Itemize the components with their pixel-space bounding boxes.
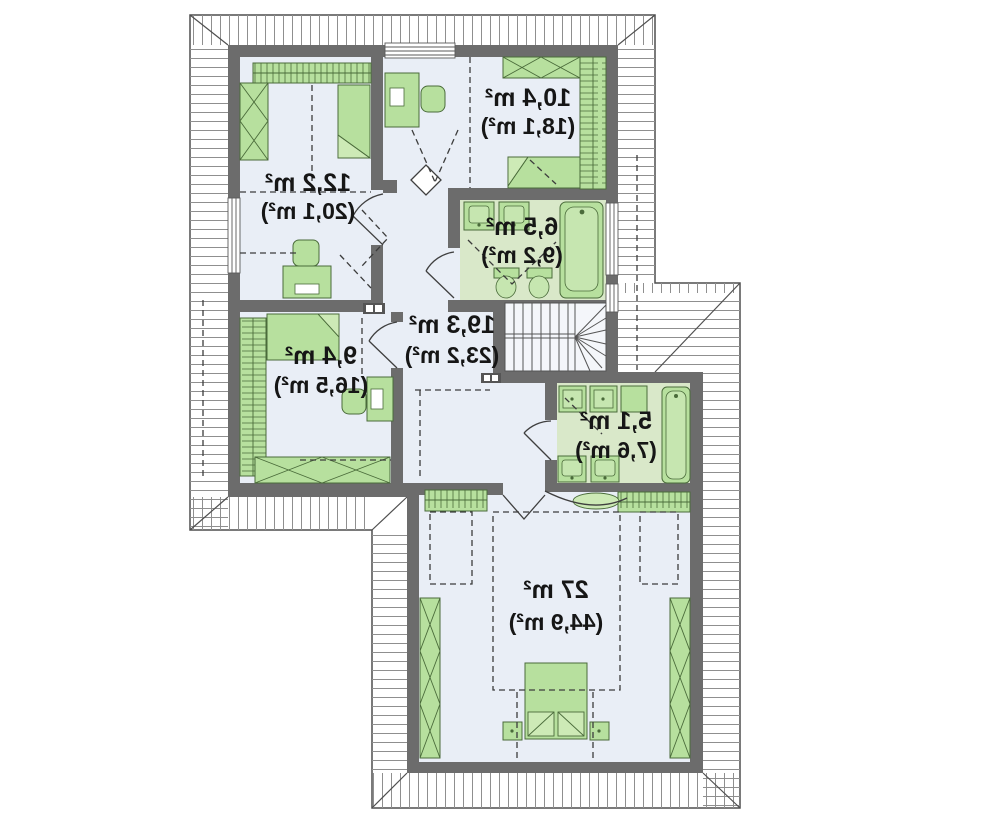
desk-icon xyxy=(283,266,331,298)
roof-hatch-bottom-left-wing xyxy=(190,497,372,530)
dresser-icon xyxy=(573,493,619,509)
roof-hatch-notch xyxy=(618,293,740,372)
double-bed-icon xyxy=(525,663,587,739)
room-label-bathroom-south: 5,1 m² xyxy=(580,407,652,435)
roof-hatch-notch-edge xyxy=(618,283,740,293)
wardrobe-icon xyxy=(253,63,371,83)
closet-icon xyxy=(425,490,487,511)
wardrobe-icon xyxy=(580,57,606,189)
floor-plan-page: 10,4 m² (18,1 m²) 12,2 m² (20,1 m²) 6,5 … xyxy=(0,0,1000,822)
room-label-master-bedroom: 27 m² xyxy=(523,576,588,604)
desk-icon xyxy=(385,73,419,127)
roof-hatch-bottom xyxy=(372,773,740,808)
chair-icon xyxy=(293,240,319,266)
roof-hatch-lower-left xyxy=(372,530,407,773)
room-label-bathroom-north: 6,5 m² xyxy=(486,213,558,241)
floor-plan: 10,4 m² (18,1 m²) 12,2 m² (20,1 m²) 6,5 … xyxy=(0,0,1000,822)
room-sublabel-bedroom-west: (20,1 m²) xyxy=(261,198,356,224)
room-label-hall: 19,3 m² xyxy=(409,311,495,339)
window-east-bathroom xyxy=(606,203,618,275)
roof-hatch-lower-right xyxy=(703,372,740,808)
room-label-bedroom-north: 10,4 m² xyxy=(485,84,571,112)
window-west xyxy=(228,198,240,273)
roof-hatch-left xyxy=(190,45,228,530)
room-sublabel-bathroom-north: (9,2 m²) xyxy=(481,242,563,268)
bed-icon xyxy=(338,85,370,158)
room-label-bedroom-southwest: 9,4 m² xyxy=(285,342,357,370)
wardrobe-icon xyxy=(420,598,440,758)
closet-icon xyxy=(618,492,690,512)
window-east-stairs xyxy=(606,284,618,312)
room-sublabel-master-bedroom: (44,9 m²) xyxy=(509,609,604,635)
wardrobe-icon xyxy=(240,318,266,476)
bed-icon xyxy=(508,157,580,188)
room-sublabel-bedroom-north: (18,1 m²) xyxy=(481,113,576,139)
stairs xyxy=(505,303,606,371)
desk-icon xyxy=(367,377,393,421)
window-north xyxy=(385,43,455,58)
vent-shaft xyxy=(481,373,501,383)
wardrobe-icon xyxy=(670,598,690,758)
room-label-bedroom-west: 12,2 m² xyxy=(265,169,351,197)
wardrobe-icon xyxy=(503,57,580,78)
room-sublabel-bedroom-southwest: (16,5 m²) xyxy=(274,372,369,398)
wardrobe-icon xyxy=(255,457,390,483)
room-sublabel-bathroom-south: (7,6 m²) xyxy=(575,437,657,463)
vent-shaft xyxy=(363,303,385,314)
bathtub-icon xyxy=(560,202,603,298)
nightstand-icon xyxy=(503,722,522,740)
bathtub-icon xyxy=(662,387,690,483)
roof-hatch-top xyxy=(190,15,655,45)
chair-icon xyxy=(421,86,445,112)
room-sublabel-hall: (23,2 m²) xyxy=(405,342,500,368)
wardrobe-icon xyxy=(240,83,268,160)
